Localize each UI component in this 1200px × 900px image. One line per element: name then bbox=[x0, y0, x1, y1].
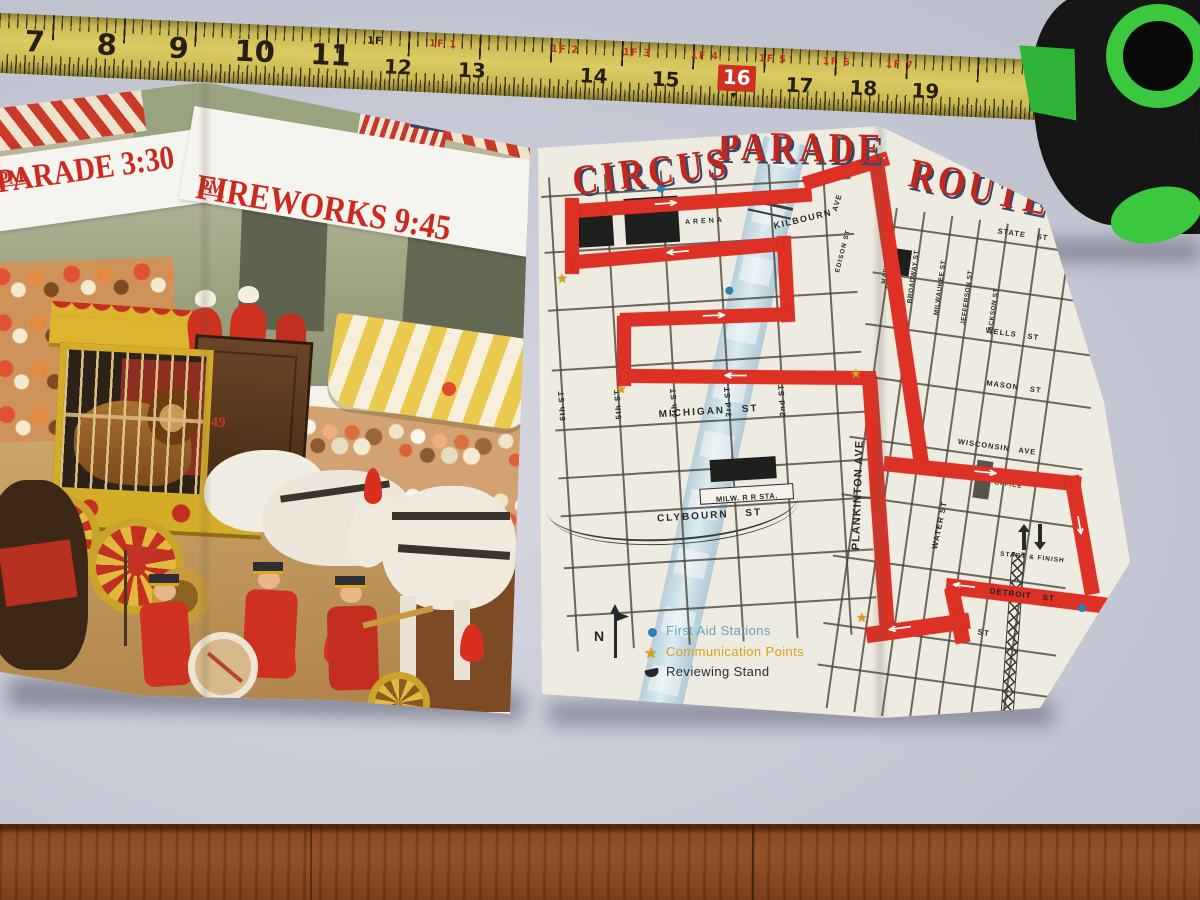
legend-communication-icon: ★ bbox=[644, 644, 657, 662]
harness-strap bbox=[398, 544, 510, 560]
tape-foot-mark: 1F 2 bbox=[551, 44, 580, 56]
tape-number: 14 bbox=[579, 63, 608, 88]
band-jacket bbox=[327, 605, 380, 691]
plank-seam bbox=[310, 824, 312, 900]
station-building bbox=[710, 456, 777, 482]
tape-number: 18 bbox=[849, 75, 878, 100]
tape-foot-mark: 1F 3 bbox=[623, 47, 652, 59]
photo-scene: 7 8 9 10 11 12 13 14 15 16 ▼ 17 18 19 1F… bbox=[0, 0, 1200, 900]
start-finish-icon bbox=[1014, 522, 1052, 552]
route-arrow-icon: ↓ bbox=[1072, 512, 1089, 542]
wood-grain bbox=[0, 824, 1200, 900]
tape-number: 15 bbox=[651, 66, 680, 91]
drum-strap bbox=[207, 652, 243, 683]
plank-seam bbox=[752, 824, 754, 900]
tape-body-ring bbox=[1106, 4, 1200, 108]
title-word-parade: PARADE bbox=[718, 123, 886, 174]
tape-foot-mark: 1F 5 bbox=[758, 53, 787, 65]
tape-16-arrow-icon: ▼ bbox=[729, 90, 738, 100]
red-balloon bbox=[442, 382, 456, 396]
flag-canton bbox=[410, 93, 452, 132]
tape-foot-mark: 1F 6 bbox=[822, 56, 851, 68]
tape-foot-mark: 1F 4 bbox=[690, 50, 719, 62]
route-arrow-icon: → bbox=[701, 307, 727, 324]
tape-foot-mark-black: 1F bbox=[367, 36, 383, 48]
tape-number: 19 bbox=[911, 78, 940, 103]
arena-label: ARENA bbox=[685, 217, 725, 226]
tape-number: 8 bbox=[96, 27, 118, 62]
sunburst-ornament bbox=[165, 498, 197, 530]
route-segment: ← bbox=[620, 369, 876, 385]
saddle-drape bbox=[0, 539, 78, 606]
dark-horse bbox=[0, 480, 88, 670]
band-cap bbox=[253, 562, 283, 574]
street-label-mason: MASON ST bbox=[986, 378, 1042, 395]
red-plume bbox=[460, 624, 484, 662]
route-arrow-icon: ← bbox=[664, 243, 691, 261]
street-grid-west: AUDITORIUM ARENA MILW. R R STA. 6th ST 5… bbox=[540, 159, 878, 652]
tape-number: 12 bbox=[383, 54, 412, 79]
legend-first-aid-label: First Aid Stations bbox=[666, 623, 771, 638]
tape-number: 9 bbox=[168, 31, 190, 66]
rider-helmet bbox=[238, 286, 259, 303]
band-cap bbox=[149, 574, 179, 586]
street-line bbox=[552, 351, 862, 372]
street-label-kilbourn: KILBOURN bbox=[773, 207, 833, 231]
band-group bbox=[124, 580, 434, 712]
tape-number: 11 bbox=[310, 37, 352, 73]
tape-foot-mark: 1F 1 bbox=[429, 38, 458, 50]
communication-star-icon: ★ bbox=[850, 366, 862, 382]
street-label-edison: EDISON ST bbox=[834, 229, 852, 273]
tape-number: 13 bbox=[457, 58, 486, 83]
street-label-3rd: 3rd ST bbox=[722, 378, 734, 424]
communication-star-icon: ★ bbox=[856, 610, 868, 626]
legend-communication-label: Communication Points bbox=[666, 644, 804, 659]
fold-crease bbox=[872, 120, 888, 734]
route-arrow-icon: → bbox=[652, 195, 679, 213]
north-arrow-head bbox=[610, 604, 620, 614]
north-arrow-line bbox=[614, 608, 617, 658]
tape-number: 7 bbox=[24, 24, 46, 59]
street-line bbox=[564, 548, 874, 569]
tape-foot-mark: 1F 7 bbox=[885, 59, 914, 71]
street-label-milwaukee: MILWAUKEE ST bbox=[933, 269, 946, 316]
street-label-kilbourn-ave: AVE bbox=[830, 193, 844, 213]
band-jacket bbox=[139, 600, 193, 687]
legend-first-aid-icon bbox=[648, 628, 657, 637]
street-line bbox=[858, 374, 1091, 408]
wood-table bbox=[0, 824, 1200, 900]
fold-crease bbox=[198, 80, 212, 730]
legend-reviewing-stand-label: Reviewing Stand bbox=[666, 664, 770, 679]
harness-strap bbox=[392, 512, 510, 520]
parade-time-text: PARADE 3:30PM bbox=[0, 160, 27, 202]
first-aid-dot-icon bbox=[725, 286, 733, 294]
route-arrow-icon: ← bbox=[886, 619, 914, 638]
band-cap bbox=[335, 576, 365, 588]
flag-pole bbox=[124, 550, 127, 646]
first-aid-dot-icon bbox=[1078, 604, 1086, 612]
street-label-6th: 6th ST bbox=[556, 382, 568, 428]
red-plume bbox=[364, 468, 382, 504]
route-arrow-icon: → bbox=[972, 463, 999, 482]
route-arrow-icon: ← bbox=[723, 368, 749, 384]
north-label: N bbox=[594, 628, 604, 644]
street-label-jefferson: JEFFERSON ST bbox=[960, 279, 973, 326]
tape-number: 10 bbox=[234, 34, 276, 70]
brochure-left-panel: 49 bbox=[0, 80, 546, 730]
lion-cage bbox=[52, 342, 214, 502]
tape-number: 17 bbox=[785, 73, 814, 98]
tape-number-highlight: 16 bbox=[717, 64, 756, 92]
